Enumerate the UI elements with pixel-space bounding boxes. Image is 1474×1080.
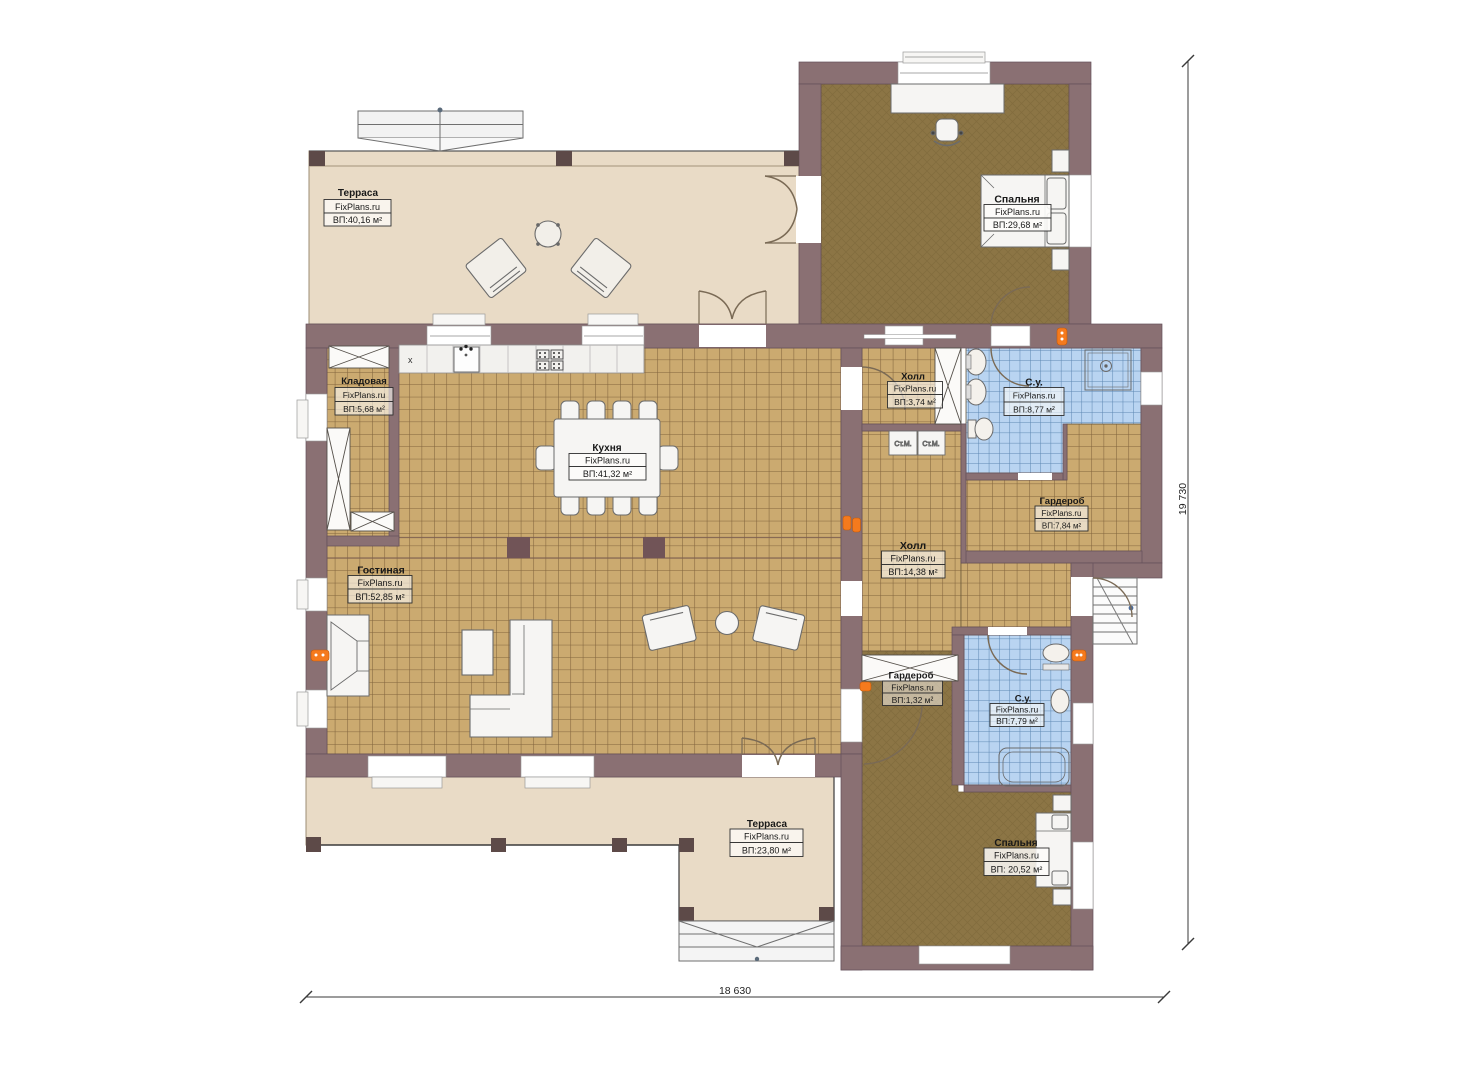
svg-text:Спальня: Спальня — [994, 194, 1039, 206]
svg-text:Кухня: Кухня — [592, 443, 621, 454]
svg-text:ВП:5,68 м²: ВП:5,68 м² — [343, 404, 385, 414]
svg-text:FixPlans.ru: FixPlans.ru — [894, 384, 937, 394]
svg-text:ВП:8,77 м²: ВП:8,77 м² — [1013, 404, 1055, 414]
svg-text:Терраса: Терраса — [338, 188, 379, 199]
svg-text:Терраса: Терраса — [747, 819, 788, 830]
svg-text:Холл: Холл — [901, 372, 925, 383]
svg-text:ВП:52,85 м²: ВП:52,85 м² — [355, 592, 404, 602]
svg-text:ВП:7,79 м²: ВП:7,79 м² — [996, 716, 1038, 726]
svg-text:ВП:1,32 м²: ВП:1,32 м² — [892, 695, 934, 705]
svg-text:FixPlans.ru: FixPlans.ru — [744, 832, 789, 842]
svg-text:ВП:29,68 м²: ВП:29,68 м² — [993, 220, 1042, 230]
svg-text:С.у.: С.у. — [1025, 378, 1043, 389]
svg-text:FixPlans.ru: FixPlans.ru — [996, 705, 1039, 715]
svg-text:Ст.М.: Ст.М. — [894, 441, 911, 448]
svg-text:18 630: 18 630 — [719, 985, 751, 997]
svg-text:x: x — [408, 355, 413, 365]
svg-text:ВП:40,16 м²: ВП:40,16 м² — [333, 215, 382, 225]
svg-text:ВП:7,84 м²: ВП:7,84 м² — [1042, 521, 1082, 530]
svg-text:FixPlans.ru: FixPlans.ru — [1041, 509, 1081, 518]
svg-text:FixPlans.ru: FixPlans.ru — [890, 554, 935, 564]
svg-text:ВП:14,38 м²: ВП:14,38 м² — [888, 567, 937, 577]
svg-text:Гостиная: Гостиная — [357, 565, 404, 577]
svg-text:FixPlans.ru: FixPlans.ru — [1013, 391, 1056, 401]
svg-text:ВП:3,74 м²: ВП:3,74 м² — [894, 397, 936, 407]
svg-text:FixPlans.ru: FixPlans.ru — [995, 207, 1040, 217]
svg-text:Гардероб: Гардероб — [889, 671, 934, 682]
svg-text:Гардероб: Гардероб — [1040, 496, 1085, 507]
svg-text:Кладовая: Кладовая — [341, 376, 387, 387]
svg-text:С.у.: С.у. — [1015, 694, 1032, 705]
svg-text:ВП: 20,52 м²: ВП: 20,52 м² — [991, 864, 1043, 874]
svg-text:FixPlans.ru: FixPlans.ru — [994, 851, 1039, 861]
svg-text:Ст.М.: Ст.М. — [922, 441, 939, 448]
svg-text:19 730: 19 730 — [1177, 483, 1189, 515]
svg-text:FixPlans.ru: FixPlans.ru — [585, 456, 630, 466]
svg-text:FixPlans.ru: FixPlans.ru — [357, 578, 402, 588]
svg-text:ВП:23,80 м²: ВП:23,80 м² — [742, 845, 791, 855]
svg-text:FixPlans.ru: FixPlans.ru — [335, 202, 380, 212]
svg-text:ВП:41,32 м²: ВП:41,32 м² — [583, 469, 632, 479]
svg-text:FixPlans.ru: FixPlans.ru — [343, 390, 386, 400]
svg-text:Спальня: Спальня — [994, 838, 1037, 849]
svg-text:FixPlans.ru: FixPlans.ru — [891, 683, 934, 693]
svg-text:Холл: Холл — [900, 540, 926, 552]
